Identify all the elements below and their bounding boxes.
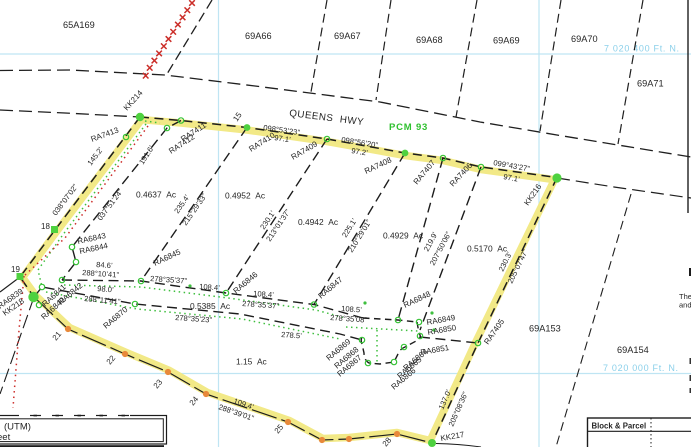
svg-text:18: 18 (41, 222, 50, 231)
svg-text:7 020 400 Ft. N.: 7 020 400 Ft. N. (604, 44, 680, 54)
svg-text:0.5170 Ac: 0.5170 Ac (467, 244, 507, 254)
svg-text:1.15 Ac: 1.15 Ac (236, 357, 267, 367)
svg-text:19: 19 (11, 265, 20, 274)
svg-text:69A153: 69A153 (529, 324, 561, 334)
svg-text:69A66: 69A66 (245, 31, 272, 41)
svg-text:0.4942 Ac: 0.4942 Ac (298, 217, 338, 227)
svg-text:278.5’: 278.5’ (281, 330, 303, 340)
svg-text:0.4929 Ac: 0.4929 Ac (383, 231, 423, 241)
svg-text:(UTM): (UTM) (4, 422, 31, 433)
svg-text:69A154: 69A154 (617, 345, 649, 355)
svg-text:108.4’: 108.4’ (199, 282, 221, 292)
svg-text:69A67: 69A67 (334, 31, 361, 41)
svg-text:69A68: 69A68 (416, 35, 443, 45)
svg-text:0.4952 Ac: 0.4952 Ac (225, 191, 265, 201)
svg-text:108.4’: 108.4’ (253, 289, 275, 299)
svg-text:108.5’: 108.5’ (341, 304, 363, 314)
svg-text:69A70: 69A70 (571, 34, 598, 44)
svg-text:eet: eet (0, 432, 11, 443)
svg-text:98.0’: 98.0’ (97, 284, 115, 294)
svg-text:69A69: 69A69 (493, 36, 520, 46)
svg-text:0.5385 Ac: 0.5385 Ac (190, 301, 230, 311)
svg-text:0.4637 Ac: 0.4637 Ac (136, 190, 176, 200)
svg-text:Block & Parcel: Block & Parcel (592, 422, 647, 431)
svg-text:PCM 93: PCM 93 (389, 122, 428, 133)
svg-text:7 020 000 Ft. N.: 7 020 000 Ft. N. (603, 363, 679, 373)
svg-text:69A71: 69A71 (637, 79, 664, 89)
svg-text:and: and (679, 301, 691, 310)
svg-text:65A169: 65A169 (63, 20, 95, 30)
